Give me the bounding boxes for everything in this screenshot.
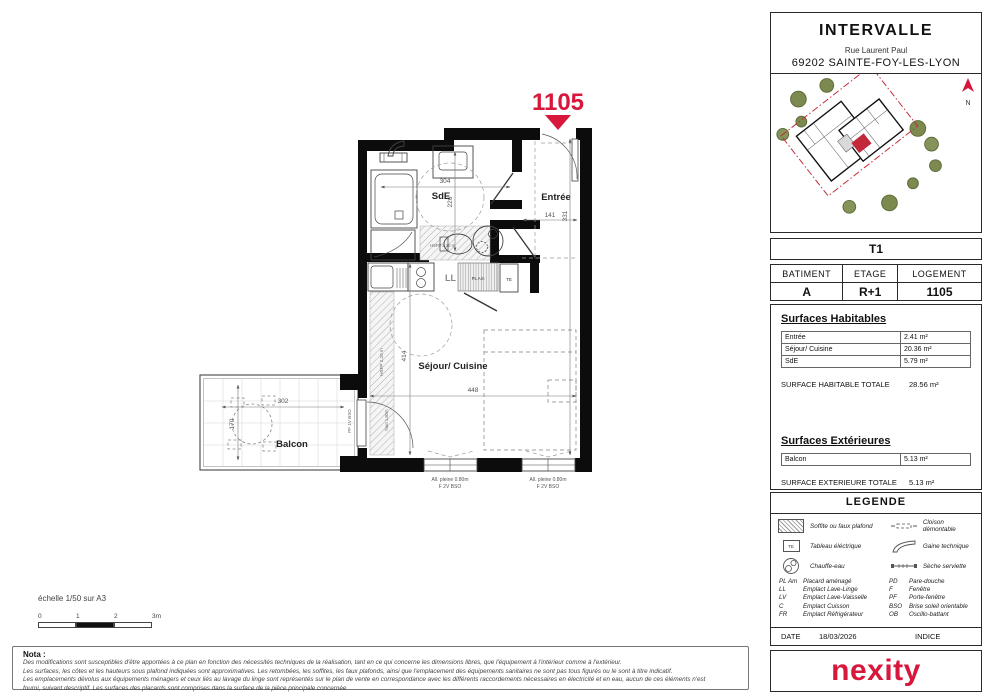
nota-box: Nota : Des modifications sont susceptibl… [12, 646, 749, 690]
soffit-height-label: HSFP 2.20 m [379, 348, 384, 376]
dim-sejour-width: 448 [468, 387, 479, 394]
window2-sill-label: All. pleine 0.80m [530, 477, 567, 483]
room-label-balcon: Balcon [276, 439, 308, 450]
balcony-door-leaf [357, 400, 366, 446]
legend-label: Sèche serviette [923, 563, 966, 570]
shower-icon [371, 170, 417, 228]
nota-line: Les surfaces, les côtes et les hauteurs … [23, 668, 738, 677]
dim-sde-height: 226 [447, 196, 454, 207]
abbreviation-row: FREmplact Réfrigérateur OBOscillo-battan… [779, 611, 973, 619]
total-value: 28.56 m² [909, 380, 939, 389]
surfaces-exterieures-table: Balcon 5.13 m² [781, 453, 971, 466]
legend-label: Gaine technique [923, 543, 969, 550]
scale-area: échelle 1/50 sur A3 0 1 2 3m [38, 594, 198, 628]
abbrev-label: Brise soleil orientable [909, 603, 973, 611]
legend-item: Soffite ou faux plafond [777, 519, 890, 533]
nota-line: Des modifications sont susceptibles d'êt… [23, 659, 738, 668]
room-label-sejour: Séjour/ Cuisine [418, 361, 487, 372]
exterior-total: SURFACE EXTERIEURE TOTALE 5.13 m² [781, 478, 971, 487]
abbreviation-row: LVEmplact Lave-Vaisselle PFPorte-fenêtre [779, 594, 973, 602]
table-row: Séjour/ Cuisine 20.36 m² [782, 344, 970, 356]
dim-sejour-height: 414 [401, 350, 408, 361]
unit-info-table: BATIMENT ETAGE LOGEMENT A R+1 1105 [770, 264, 982, 301]
table-row: Entrée 2.41 m² [782, 332, 970, 344]
scale-tick: 2 [114, 613, 152, 620]
scale-bar [38, 622, 198, 628]
floorplan-drawing: 1105 Balcon 302 170 PF 1V BSO [0, 0, 765, 640]
door-height-label: haut 1.80m [384, 409, 389, 430]
row-value: 2.41 m² [901, 334, 970, 341]
towel-dryer-legend-icon [890, 559, 918, 573]
sink-unit-icon [368, 263, 408, 291]
dim-entree-height: 331 [562, 210, 569, 221]
total-label: SURFACE HABITABLE TOTALE [781, 380, 909, 389]
nota-line: Les emplacements dévolus aux équipements… [23, 676, 738, 685]
plan-sheet: 1105 Balcon 302 170 PF 1V BSO [0, 0, 1000, 695]
abbreviation-row: CEmplact Cuisson BSOBrise soleil orienta… [779, 603, 973, 611]
surfaces-habitables-table: Entrée 2.41 m² Séjour/ Cuisine 20.36 m² … [781, 331, 971, 368]
nota-title: Nota : [23, 650, 738, 659]
abbrev-label: Fenêtre [909, 586, 973, 594]
north-indicator: N [960, 78, 976, 107]
balcony: Balcon 302 170 PF 1V BSO [200, 375, 358, 470]
total-value: 5.13 m² [909, 478, 934, 487]
surfaces-box: Surfaces Habitables Entrée 2.41 m² Séjou… [770, 304, 982, 490]
legend-box: LEGENDE Soffite ou faux plafond Cloison … [770, 492, 982, 646]
scale-segment [114, 622, 152, 628]
dim-balcon-width: 302 [278, 398, 289, 405]
water-heater-legend-icon [777, 559, 805, 573]
sejour-door-leaf [464, 293, 497, 311]
scale-ticks: 0 1 2 3m [38, 613, 198, 620]
unit-number-label: 1105 [532, 89, 584, 116]
wc-soffit-height-label: HSFP 2.20 m [430, 243, 456, 248]
abbrev-code: F [889, 586, 909, 594]
indice-label: INDICE [915, 632, 940, 641]
value-etage: R+1 [842, 282, 897, 300]
unit-pointer-icon [545, 115, 571, 130]
closet-label: PL Am [472, 276, 485, 281]
abbrev-label: Pare-douche [909, 578, 973, 586]
window1-sill-label: All. pleine 0.80m [432, 477, 469, 483]
technical-duct-icon [890, 539, 918, 553]
dimension-lines [370, 139, 577, 455]
north-arrow-icon [961, 78, 975, 94]
abbreviation-row: PL AmPlacard aménagé PDPare-douche [779, 578, 973, 586]
abbrev-code: PD [889, 578, 909, 586]
abbrev-code: PF [889, 594, 909, 602]
abbreviation-row: LLEmplact Lave-Linge FFenêtre [779, 586, 973, 594]
project-city: 69202 SAINTE-FOY-LES-LYON [771, 57, 981, 69]
window1-type-label: F 2V BSO [439, 484, 462, 490]
title-block: INTERVALLE Rue Laurent Paul 69202 SAINTE… [770, 12, 982, 74]
table-row: SdE 5.79 m² [782, 356, 970, 367]
col-header-logement: LOGEMENT [897, 265, 981, 282]
abbrev-code: LL [779, 586, 803, 594]
soffit-hatch-icon [777, 519, 805, 533]
electrical-panel-label: TE [506, 277, 512, 282]
legend-title: LEGENDE [771, 493, 981, 514]
logo-box: nexity [770, 650, 982, 692]
col-header-batiment: BATIMENT [771, 265, 842, 282]
window2-type-label: F 2V BSO [537, 484, 560, 490]
date-row: DATE 18/03/2026 INDICE [771, 627, 981, 645]
habitable-total: SURFACE HABITABLE TOTALE 28.56 m² [781, 380, 971, 389]
nota-line: fourni, suivant descriptif. Les surfaces… [23, 685, 738, 694]
date-label: DATE [781, 632, 819, 641]
site-plan-box: N [770, 73, 982, 233]
abbrev-label: Emplact Lave-Linge [803, 586, 889, 594]
legend-item: TE Tableau éléctrique [777, 539, 890, 553]
legend-item: Cloison démontable [890, 519, 975, 533]
north-label: N [960, 100, 976, 107]
legend-item: Gaine technique [890, 539, 975, 553]
legend-items: Soffite ou faux plafond Cloison démontab… [771, 514, 981, 575]
washer-slot-label: LL [445, 273, 456, 283]
nexity-logo: nexity [831, 656, 921, 686]
total-label: SURFACE EXTERIEURE TOTALE [781, 478, 909, 487]
value-logement: 1105 [897, 282, 981, 300]
electrical-panel-legend-icon: TE [777, 539, 805, 553]
room-label-entree: Entrée [541, 192, 571, 203]
scale-label: échelle 1/50 sur A3 [38, 594, 198, 603]
abbrev-label: Porte-fenêtre [909, 594, 973, 602]
legend-label: Chauffe-eau [810, 563, 845, 570]
scale-tick: 0 [38, 613, 76, 620]
abbreviations-list: PL AmPlacard aménagé PDPare-douche LLEmp… [771, 575, 981, 619]
table-row: Balcon 5.13 m² [782, 454, 970, 465]
scale-segment [76, 622, 114, 628]
scale-tick: 1 [76, 613, 114, 620]
abbrev-label: Emplact Cuisson [803, 603, 889, 611]
legend-item: Sèche serviette [890, 559, 975, 573]
surfaces-exterieures-title: Surfaces Extérieures [781, 435, 971, 447]
date-value: 18/03/2026 [819, 632, 897, 641]
dim-balcon-height: 170 [229, 418, 236, 429]
abbrev-label: Placard aménagé [803, 578, 889, 586]
abbrev-code: C [779, 603, 803, 611]
abbrev-code: LV [779, 594, 803, 602]
removable-partition-icon [890, 519, 918, 533]
dim-sde-width: 304 [440, 178, 451, 185]
site-plan-drawing [771, 74, 957, 228]
abbrev-label: Emplact Lave-Vaisselle [803, 594, 889, 602]
row-label: Séjour/ Cuisine [782, 344, 901, 355]
abbrev-code: BSO [889, 603, 909, 611]
abbrev-code: PL Am [779, 578, 803, 586]
abbrev-code: OB [889, 611, 909, 619]
legend-item: Chauffe-eau [777, 559, 890, 573]
project-title: INTERVALLE [771, 22, 981, 40]
balcony-door-type-label: PF 1V BSO [347, 409, 352, 433]
row-value: 20.36 m² [901, 346, 970, 353]
legend-label: Soffite ou faux plafond [810, 523, 873, 530]
dashed-guides [390, 141, 578, 457]
row-label: SdE [782, 356, 901, 367]
bed-icon [484, 330, 576, 450]
kitchen-strip [368, 263, 434, 291]
row-label: Balcon [782, 454, 901, 465]
col-header-etage: ETAGE [842, 265, 897, 282]
dim-entree-width: 141 [545, 212, 556, 219]
sde-door-leaf [491, 173, 513, 204]
abbrev-code: FR [779, 611, 803, 619]
abbrev-label: Emplact Réfrigérateur [803, 611, 889, 619]
scale-segment [38, 622, 76, 628]
row-value: 5.13 m² [901, 456, 970, 463]
surfaces-habitables-title: Surfaces Habitables [781, 313, 971, 325]
legend-label: Cloison démontable [923, 519, 975, 533]
project-street: Rue Laurent Paul [771, 46, 981, 55]
value-batiment: A [771, 282, 842, 300]
row-value: 5.79 m² [901, 358, 970, 365]
scale-tick: 3m [152, 613, 190, 620]
legend-label: Tableau éléctrique [810, 543, 861, 550]
wc-door-leaf [513, 227, 536, 259]
abbrev-label: Oscillo-battant [909, 611, 973, 619]
unit-type-box: T1 [770, 238, 982, 260]
row-label: Entrée [782, 332, 901, 343]
